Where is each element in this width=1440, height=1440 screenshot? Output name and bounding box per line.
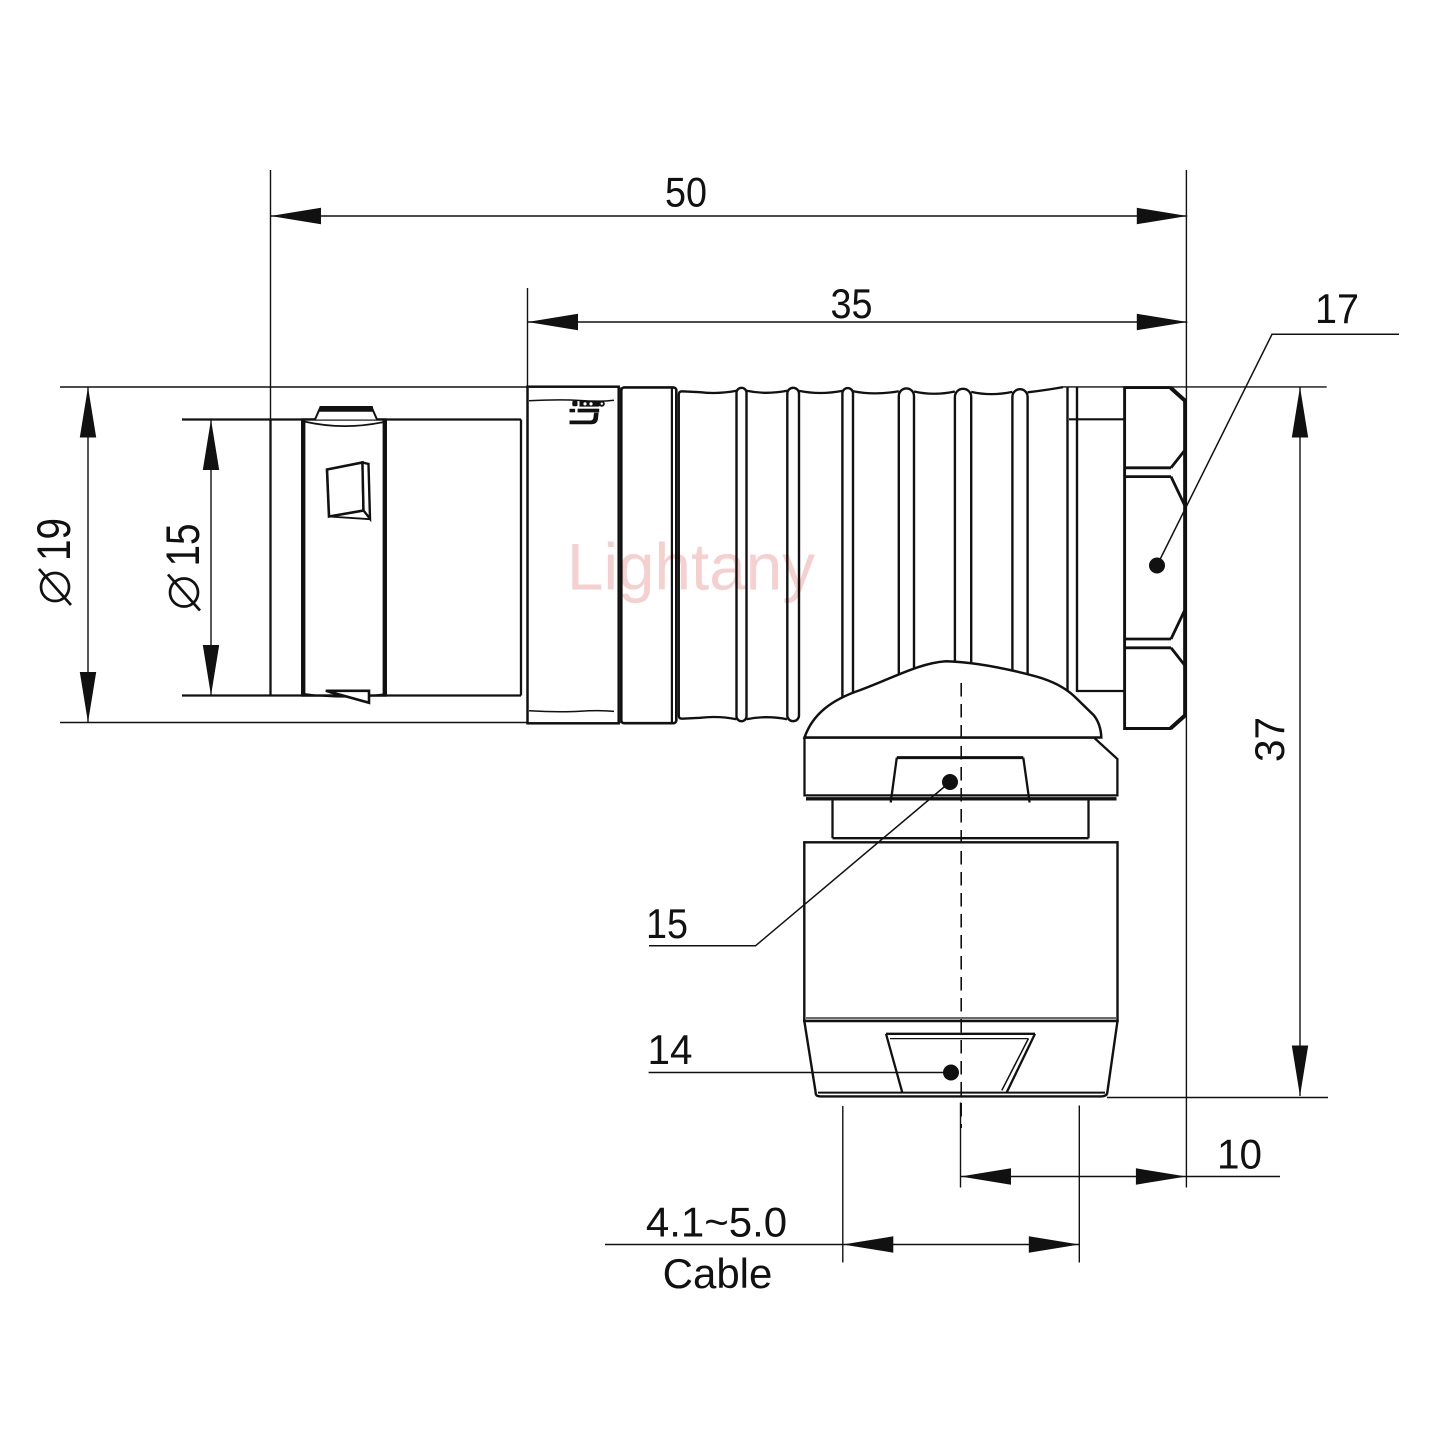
svg-text:17: 17: [1315, 285, 1359, 332]
svg-text:35: 35: [831, 280, 873, 327]
svg-text:19: 19: [27, 518, 80, 561]
svg-text:15: 15: [156, 524, 209, 567]
svg-text:37: 37: [1246, 717, 1293, 762]
svg-text:15: 15: [646, 900, 688, 947]
svg-text:10: 10: [1217, 1131, 1262, 1178]
svg-text:Lightany: Lightany: [567, 530, 815, 604]
svg-text:4.1~5.0: 4.1~5.0: [646, 1199, 787, 1246]
svg-text:50: 50: [665, 169, 707, 216]
svg-text:Cable: Cable: [663, 1250, 773, 1297]
svg-text:14: 14: [648, 1026, 693, 1073]
